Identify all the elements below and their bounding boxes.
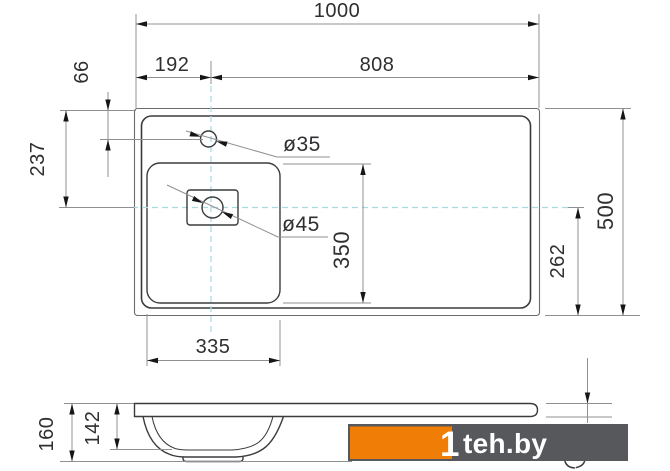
dim-drain-offset-top: 237 [27, 111, 134, 208]
dim-drain-offset-top-label: 237 [27, 142, 49, 177]
technical-drawing-page: 1000 192 808 66 237 [0, 0, 670, 471]
dim-bowl-height-label: 142 [82, 411, 104, 446]
dim-faucet-horizontal: 192 808 [136, 54, 539, 84]
faucet-hole-diameter-label: ø35 [283, 133, 321, 156]
dim-faucet-offset-left-label: 192 [155, 54, 190, 76]
watermark-orange-block [350, 427, 452, 460]
watermark-curl-mark [565, 462, 585, 469]
dim-drain-axis-to-bottom: 262 [547, 208, 584, 316]
dim-drain-axis-to-bottom-label: 262 [547, 244, 569, 279]
dim-total-width: 1000 [136, 0, 539, 108]
top-view: 1000 192 808 66 237 [27, 0, 640, 366]
sink-dimension-drawing: 1000 192 808 66 237 [0, 0, 670, 471]
counter-slab-section [135, 404, 538, 417]
dim-faucet-to-right-label: 808 [360, 54, 395, 76]
dim-slab-edge [546, 358, 612, 423]
dim-faucet-offset-top-label: 66 [71, 60, 93, 83]
watermark-logo-digit: 1 [440, 425, 459, 464]
basin-bowl-outline [147, 163, 280, 303]
dim-total-depth: 500 [545, 109, 640, 316]
dim-basin-length-label: 350 [329, 231, 354, 269]
dim-basin-width: 335 [147, 314, 280, 366]
dim-total-height-label: 160 [36, 417, 58, 452]
watermark-site-label: teh.by [463, 428, 547, 459]
dim-total-depth-label: 500 [593, 192, 618, 230]
dim-total-width-label: 1000 [314, 0, 361, 22]
bowl-section-outline [143, 417, 284, 458]
drain-hole-diameter-label: ø45 [282, 213, 320, 236]
dim-basin-width-label: 335 [196, 336, 231, 358]
watermark: 1 teh.by [348, 424, 628, 468]
